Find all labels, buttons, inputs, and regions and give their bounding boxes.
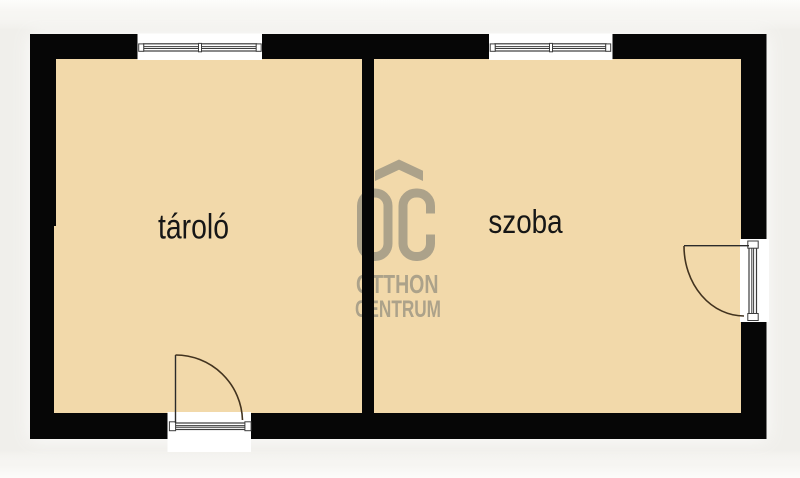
svg-text:tároló: tároló	[158, 208, 229, 247]
svg-text:szoba: szoba	[488, 203, 563, 240]
